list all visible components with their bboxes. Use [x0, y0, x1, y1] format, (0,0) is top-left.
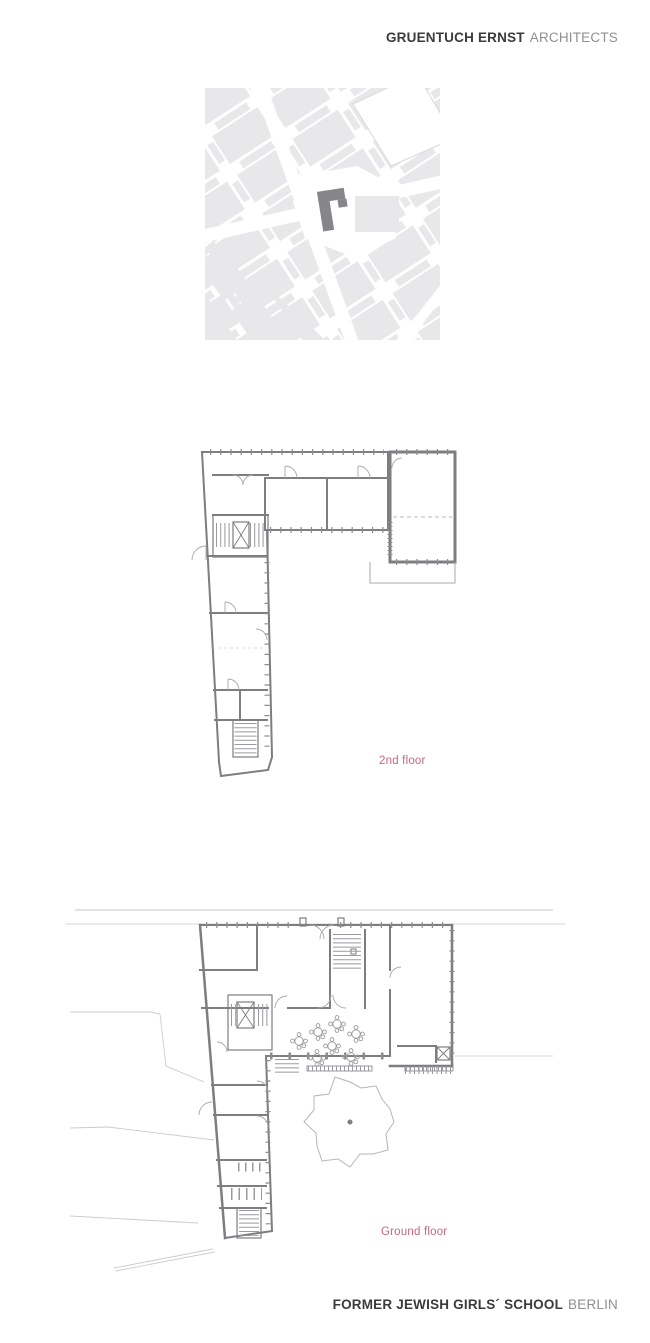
footer-project-title: FORMER JEWISH GIRLS´ SCHOOLBERLIN	[333, 1297, 618, 1312]
firm-suffix: ARCHITECTS	[530, 30, 618, 45]
walls	[200, 925, 452, 1238]
ground-floor-plan	[65, 900, 565, 1290]
ground-floor-label: Ground floor	[381, 1226, 447, 1238]
door-swings	[199, 925, 401, 1127]
firm-name: GRUENTUCH ERNST	[386, 30, 525, 45]
tree-icon	[304, 1077, 394, 1167]
neighbor-block	[355, 196, 399, 232]
project-name: FORMER JEWISH GIRLS´ SCHOOL	[333, 1297, 563, 1312]
project-location: BERLIN	[568, 1297, 618, 1312]
site-map	[205, 88, 440, 340]
second-floor-plan	[150, 443, 462, 783]
window-ticks	[210, 452, 450, 750]
header-brand[interactable]: GRUENTUCH ERNSTARCHITECTS	[386, 30, 618, 45]
site-context-lines	[65, 910, 565, 1271]
page: { "header": { "firm_name": "GRUENTUCH ER…	[0, 0, 650, 1343]
second-floor-label: 2nd floor	[379, 755, 426, 767]
